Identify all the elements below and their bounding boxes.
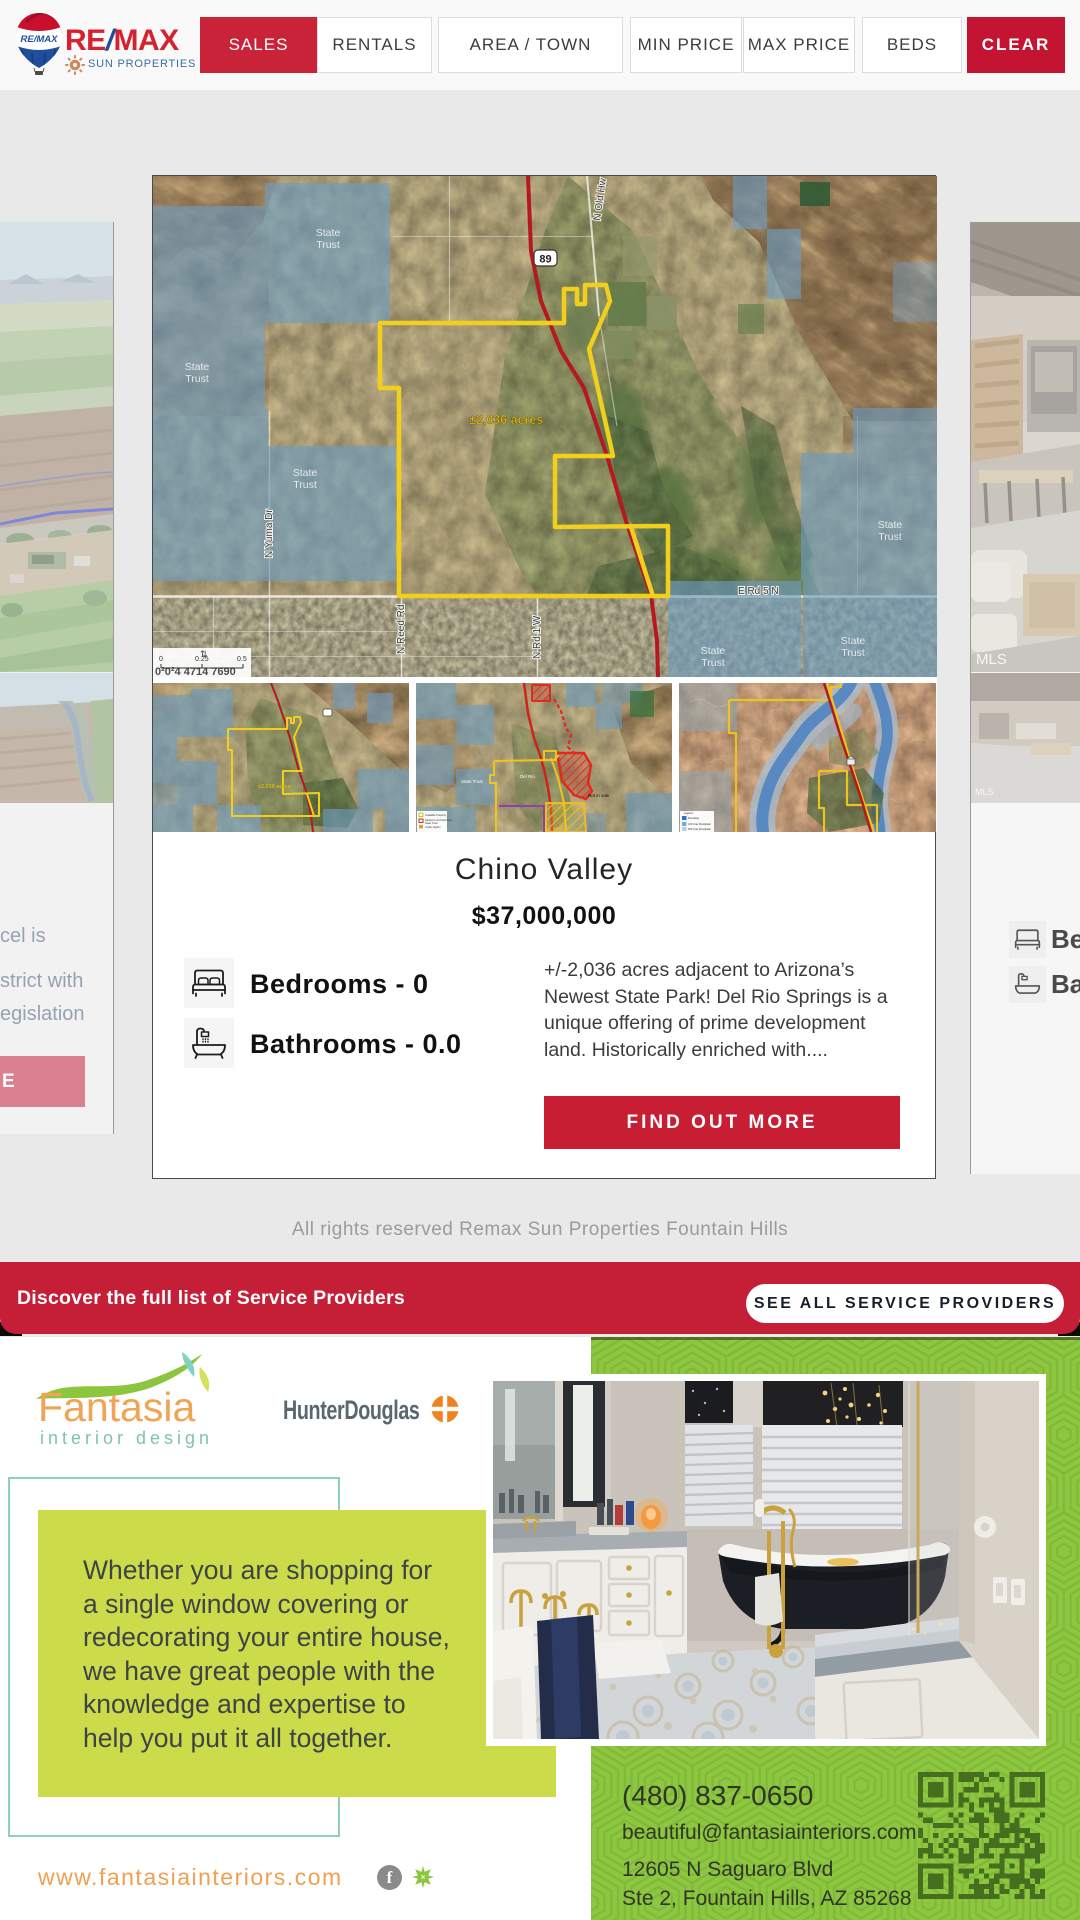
svg-text:0²0²4 4714 7690: 0²0²4 4714 7690: [155, 666, 236, 677]
svg-text:N Reed Rd: N Reed Rd: [396, 605, 407, 654]
svg-text:N Rd 1 W: N Rd 1 W: [532, 615, 543, 659]
svg-text:Del Rio: Del Rio: [520, 774, 535, 779]
svg-text:State Trust: State Trust: [425, 821, 438, 825]
svg-text:N Yuma Dr: N Yuma Dr: [264, 509, 275, 558]
svg-text:Under Option: Under Option: [425, 825, 441, 829]
svg-text:Not in sale: Not in sale: [588, 793, 610, 798]
svg-text:State: State: [185, 361, 210, 373]
svg-text:Trust: Trust: [316, 239, 340, 251]
svg-text:State: State: [841, 635, 866, 647]
svg-text:State: State: [701, 645, 726, 657]
svg-text:E Rd 5 N: E Rd 5 N: [738, 586, 779, 597]
svg-text:Available Property: Available Property: [425, 813, 447, 817]
svg-text:Trust: Trust: [701, 657, 725, 669]
svg-text:Trust: Trust: [185, 373, 209, 385]
svg-text:⇅: ⇅: [200, 649, 208, 659]
svg-text:Trust: Trust: [878, 531, 902, 543]
svg-text:interior design: interior design: [40, 1428, 213, 1448]
svg-text:State: State: [316, 227, 341, 239]
svg-text:Floodway: Floodway: [688, 816, 700, 820]
svg-text:500 Year Floodplain: 500 Year Floodplain: [688, 827, 711, 831]
svg-text:Legend: Legend: [684, 811, 693, 815]
svg-text:±2,036 acres: ±2,036 acres: [258, 784, 291, 790]
svg-text:0.5: 0.5: [237, 656, 247, 663]
svg-text:0: 0: [159, 656, 163, 663]
svg-text:Trust: Trust: [293, 479, 317, 491]
svg-text:Fantasia: Fantasia: [38, 1384, 195, 1430]
svg-text:State: State: [878, 519, 903, 531]
svg-text:100 Year Floodplain: 100 Year Floodplain: [688, 822, 711, 826]
svg-text:±2,036 acres: ±2,036 acres: [469, 413, 543, 427]
svg-text:State Trust: State Trust: [461, 779, 484, 784]
svg-text:State: State: [293, 467, 318, 479]
svg-text:RE/MAX: RE/MAX: [21, 34, 59, 45]
svg-text:89: 89: [539, 254, 551, 266]
svg-text:Trust: Trust: [841, 647, 865, 659]
